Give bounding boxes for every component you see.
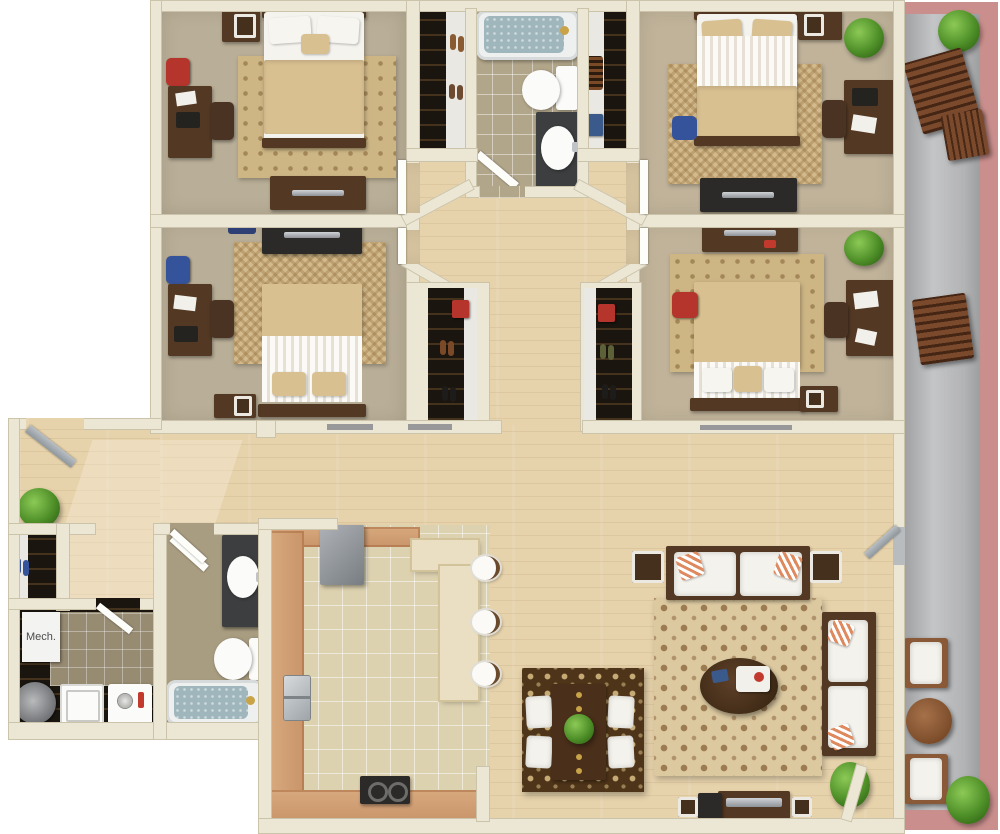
bedroom-midright-desk-papers — [853, 291, 879, 310]
dining-centerpiece-plant — [564, 714, 594, 744]
wall-closet-nw-bottom — [406, 148, 478, 162]
wall-kitchen-left — [258, 518, 272, 834]
bathroom-top-sink — [541, 126, 575, 170]
bedroom-midright-remote — [764, 240, 776, 248]
kitchen-stove-burner-left — [368, 782, 388, 802]
closet-southeast-red-box — [598, 304, 615, 322]
bedroom-midright-picture-frame — [806, 390, 824, 408]
water-heater — [14, 682, 56, 724]
bathroom-bottom-sink — [227, 556, 259, 598]
living-side-table-right — [792, 797, 812, 817]
bedroom-midright-desk-chair — [824, 302, 848, 338]
bedroom-midleft-picture-frame — [234, 396, 252, 416]
bedroom-topright-bed-sheet — [697, 36, 797, 86]
bedroom-midleft-bed-headboard — [258, 404, 366, 417]
wall-bedrooms-right-divider — [634, 214, 905, 228]
bedroom-topleft-bed-footboard — [262, 138, 366, 148]
kitchen-stove-burner-right — [388, 782, 408, 802]
window-closet-southwest — [408, 424, 452, 430]
kitchen-island-body — [440, 566, 478, 700]
wall-left-lower — [8, 418, 20, 740]
window-bedroom-midright — [700, 425, 792, 430]
kitchen-fridge — [320, 525, 364, 585]
kitchen-stool-2 — [472, 610, 500, 634]
living-tv — [726, 798, 782, 807]
dining-chair-left-1 — [525, 695, 553, 728]
balcony-plant-bottom — [946, 776, 990, 824]
bedroom-topleft-desk-papers — [175, 91, 197, 107]
bedroom-topleft-door-opening — [406, 163, 420, 213]
bedroom-midright-pillow-left — [702, 368, 732, 392]
living-side-table-left — [678, 797, 698, 817]
closet-southwest-red-box — [452, 300, 469, 318]
bedroom-midright-bed-top — [694, 282, 800, 368]
balcony-round-table — [906, 698, 952, 744]
kitchen-sink-divider — [284, 696, 310, 699]
bathroom-bottom-toilet-bowl — [214, 638, 252, 680]
bathroom-bottom-tub-faucet — [246, 696, 255, 705]
slippers-pair — [449, 84, 455, 99]
bathroom-bottom-tub-water — [174, 686, 248, 719]
living-end-table-left — [632, 551, 664, 583]
window-bedroom-midleft — [327, 424, 373, 430]
bedroom-topleft-blanket — [264, 60, 364, 134]
mech-room-floor — [50, 612, 154, 686]
bedroom-midleft-pillow-right — [312, 372, 346, 396]
wall-top — [150, 0, 905, 12]
bedroom-topleft-picture-frame — [234, 14, 256, 38]
bedroom-midright-tv — [724, 230, 776, 236]
closet-northwest-floor — [446, 8, 467, 156]
wall-pillar-dining — [476, 766, 490, 822]
bedroom-midright-bed-headboard — [690, 398, 804, 411]
bedroom-topright-desk-chair — [822, 100, 846, 138]
kitchen-stool-1 — [472, 556, 500, 580]
bedroom-topright-blanket — [697, 86, 797, 138]
bedroom-midright-plant — [844, 230, 884, 266]
dining-chair-right-2 — [607, 735, 635, 768]
bedroom-topleft-dresser-handle — [292, 190, 344, 196]
bedroom-topleft-desk-chair — [210, 102, 234, 140]
bedroom-midright-pillow-right — [764, 368, 794, 392]
wall-balcony-divider — [893, 0, 905, 832]
bedroom-topleft-desk-laptop — [176, 112, 200, 128]
bedroom-midleft-bed-top — [262, 284, 362, 340]
balcony-plant-top — [938, 10, 980, 52]
wall-pillar-hall — [256, 420, 276, 438]
dryer-knob — [118, 694, 132, 708]
bedroom-topright-door — [640, 160, 648, 214]
balcony-chair-upper-cushion — [910, 642, 942, 684]
bedroom-midleft-door — [398, 228, 406, 264]
sandals-pair — [450, 34, 456, 50]
bedroom-midleft-desk-keyboard — [174, 326, 198, 342]
apartment-floor-plan: Mech. — [0, 0, 1000, 834]
bathroom-top-tub-water — [484, 16, 564, 53]
living-end-table-right — [810, 551, 842, 583]
closet-southwest-shoes — [440, 340, 446, 355]
wall-closet-ne-bottom — [577, 148, 640, 162]
dining-table-candles — [576, 692, 582, 698]
bedroom-topleft-door — [398, 160, 406, 214]
balcony-chaise-middle — [912, 293, 975, 366]
closet-southeast-shoes — [600, 344, 606, 359]
bedroom-topright-plant — [844, 18, 884, 58]
mech-room-label: Mech. — [22, 612, 60, 662]
wall-bottom-main — [258, 818, 905, 834]
wall-bedrooms-left-divider — [150, 214, 414, 228]
bedroom-topleft-backpack — [166, 58, 190, 86]
wall-bathroom-top-right — [577, 8, 589, 198]
cutout-top-left — [0, 0, 150, 418]
bathroom-top-tub-faucet — [560, 26, 569, 35]
bedroom-topright-bed-footboard — [694, 136, 800, 146]
balcony-chair-lower-cushion — [910, 758, 942, 800]
bedroom-midleft-door-opening — [406, 230, 420, 264]
bedroom-midright-backpack — [672, 292, 698, 318]
washer-door — [66, 690, 100, 722]
bedroom-topright-desk-laptop — [852, 88, 878, 106]
closet-southeast-floor — [584, 288, 596, 420]
bathroom-top-door-opening — [479, 186, 525, 198]
balcony-side-table — [940, 109, 989, 162]
bedroom-topright-door-opening — [626, 163, 640, 213]
bedroom-topright-dresser-handle — [722, 192, 774, 198]
wall-kitchen-top-stub — [258, 518, 338, 530]
wall-entry-closet-top — [8, 523, 96, 535]
bedroom-midleft-desk-papers — [173, 295, 197, 312]
bedroom-midright-door — [640, 228, 648, 264]
entry-plant — [18, 488, 60, 528]
bathroom-top-toilet-bowl — [522, 70, 560, 110]
bedroom-midleft-tv — [284, 232, 340, 238]
living-speaker-cube — [698, 793, 722, 819]
cutout-bottom-left — [0, 740, 258, 834]
living-coffee-table-bowl — [754, 672, 764, 682]
wall-bottom-left-wing — [8, 722, 266, 740]
wall-bathroom-top-left — [465, 8, 477, 198]
bedroom-topright-picture-frame — [804, 14, 824, 36]
bedroom-midleft-desk-chair — [210, 300, 234, 338]
bedroom-midleft-backpack — [166, 256, 190, 284]
bedroom-midright-door-opening — [626, 230, 640, 264]
bedroom-topleft-accent-pillow — [301, 34, 329, 54]
kitchen-stool-3 — [472, 662, 500, 686]
bedroom-midright-pillow-center — [734, 366, 762, 392]
dining-chair-left-2 — [525, 735, 553, 768]
wall-bathroom-bottom-left — [153, 523, 167, 740]
dining-chair-right-1 — [607, 695, 635, 728]
bedroom-midleft-pillow-left — [272, 372, 306, 396]
bedroom-topright-backpack — [672, 116, 697, 140]
detergent-bottle — [138, 692, 144, 708]
living-coffee-table-tray — [736, 666, 770, 692]
